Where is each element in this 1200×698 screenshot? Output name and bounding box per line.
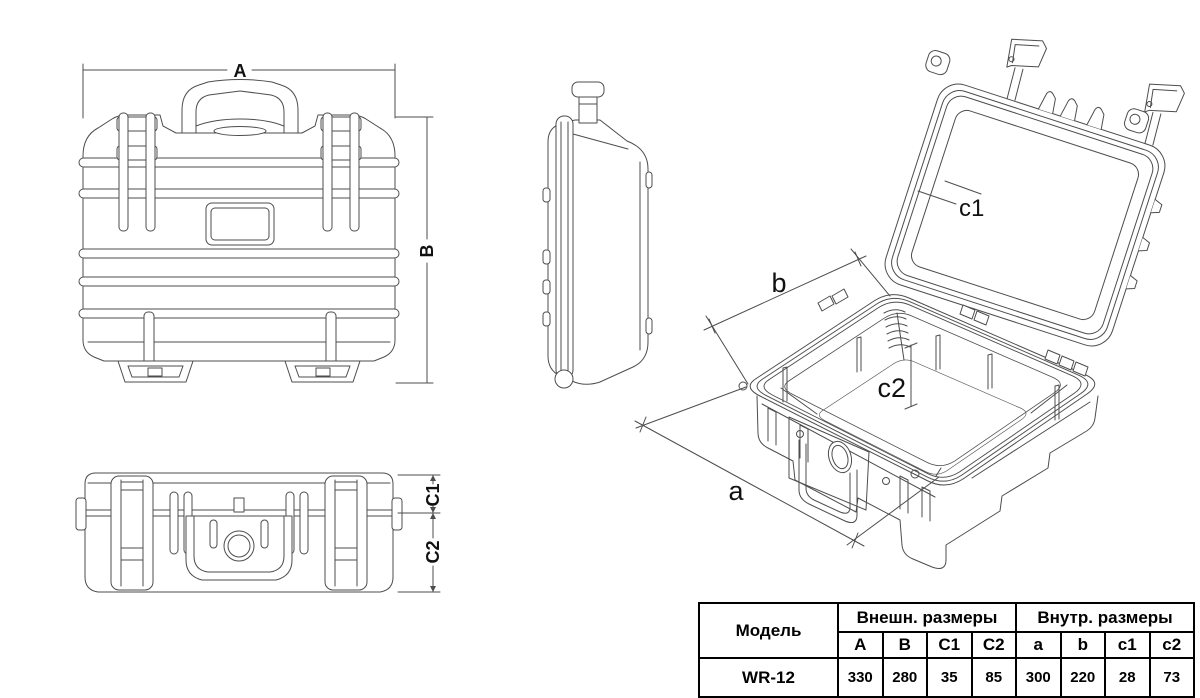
spec-model-header: Модель xyxy=(699,603,838,658)
dim-label-b: b xyxy=(771,268,786,298)
top-side-nub-right xyxy=(392,498,402,530)
spec-value-b: 220 xyxy=(1061,658,1106,697)
spec-col-B: B xyxy=(883,632,928,658)
spec-value-c2: 73 xyxy=(1150,658,1195,697)
lid-latch-left xyxy=(994,32,1049,106)
dim-label-a: a xyxy=(728,476,744,506)
lid-ear-left xyxy=(924,49,952,77)
spec-value-c1: 28 xyxy=(1105,658,1150,697)
spec-col-a: a xyxy=(1016,632,1061,658)
front-feet xyxy=(118,361,360,382)
spec-inner-group-header: Внутр. размеры xyxy=(1016,603,1194,632)
side-view xyxy=(543,82,652,388)
dim-label-C1: C1 xyxy=(423,483,443,506)
spec-value-A: 330 xyxy=(838,658,883,697)
table-row: WR-12 330 280 35 85 300 220 28 73 xyxy=(699,658,1194,697)
spec-table: Модель Внешн. размеры Внутр. размеры A B… xyxy=(698,602,1195,698)
front-view: A B xyxy=(79,61,437,383)
perspective-view: b a c1 c2 xyxy=(635,9,1199,569)
spec-outer-group-header: Внешн. размеры xyxy=(838,603,1016,632)
dim-label-B: B xyxy=(417,245,437,258)
case-dimension-drawing: A B xyxy=(0,0,1200,698)
spec-value-B: 280 xyxy=(883,658,928,697)
spec-col-b: b xyxy=(1061,632,1106,658)
top-view: C1 C2 xyxy=(76,473,443,592)
spec-col-c1: c1 xyxy=(1105,632,1150,658)
dim-label-c1: c1 xyxy=(959,195,984,222)
spec-model-value: WR-12 xyxy=(699,658,838,697)
spec-col-C1: C1 xyxy=(927,632,972,658)
spec-col-A: A xyxy=(838,632,883,658)
dimension-C2: C2 xyxy=(398,513,443,592)
spec-col-C2: C2 xyxy=(972,632,1017,658)
spec-col-c2: c2 xyxy=(1150,632,1195,658)
top-latch-right xyxy=(325,476,367,590)
top-side-nub-left xyxy=(76,498,86,530)
top-center-tab xyxy=(234,498,244,512)
front-latch-right xyxy=(321,113,361,231)
front-latch-left xyxy=(117,113,157,231)
side-strap xyxy=(555,116,573,388)
spec-value-C2: 85 xyxy=(972,658,1017,697)
technical-drawing: A B xyxy=(0,0,1200,698)
side-handle xyxy=(572,82,604,123)
dimension-C1: C1 xyxy=(398,475,443,513)
top-latch-left xyxy=(111,476,153,590)
dimension-B: B xyxy=(396,117,437,383)
dim-label-c2: c2 xyxy=(877,373,906,403)
dim-label-C2: C2 xyxy=(423,540,443,563)
front-handle xyxy=(182,80,298,136)
dim-label-A: A xyxy=(234,61,247,81)
front-label-plate xyxy=(206,203,274,245)
spec-value-a: 300 xyxy=(1016,658,1061,697)
spec-value-C1: 35 xyxy=(927,658,972,697)
